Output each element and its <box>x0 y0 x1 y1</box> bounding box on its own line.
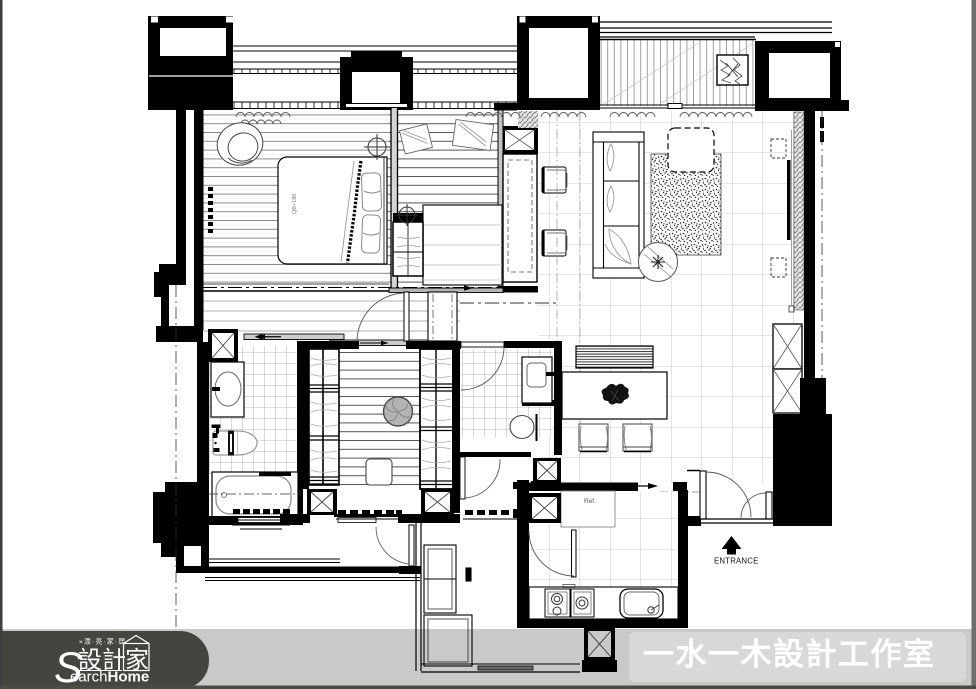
svg-text:ENTRANCE: ENTRANCE <box>714 557 759 566</box>
svg-text:一水一木設計工作室: 一水一木設計工作室 <box>643 637 936 672</box>
svg-text:Ref.: Ref. <box>584 498 596 505</box>
svg-text:QB+180: QB+180 <box>292 194 298 214</box>
svg-text:»漂·亮·家·居: »漂·亮·家·居 <box>79 637 126 646</box>
svg-text:earchHome: earchHome <box>70 669 149 686</box>
